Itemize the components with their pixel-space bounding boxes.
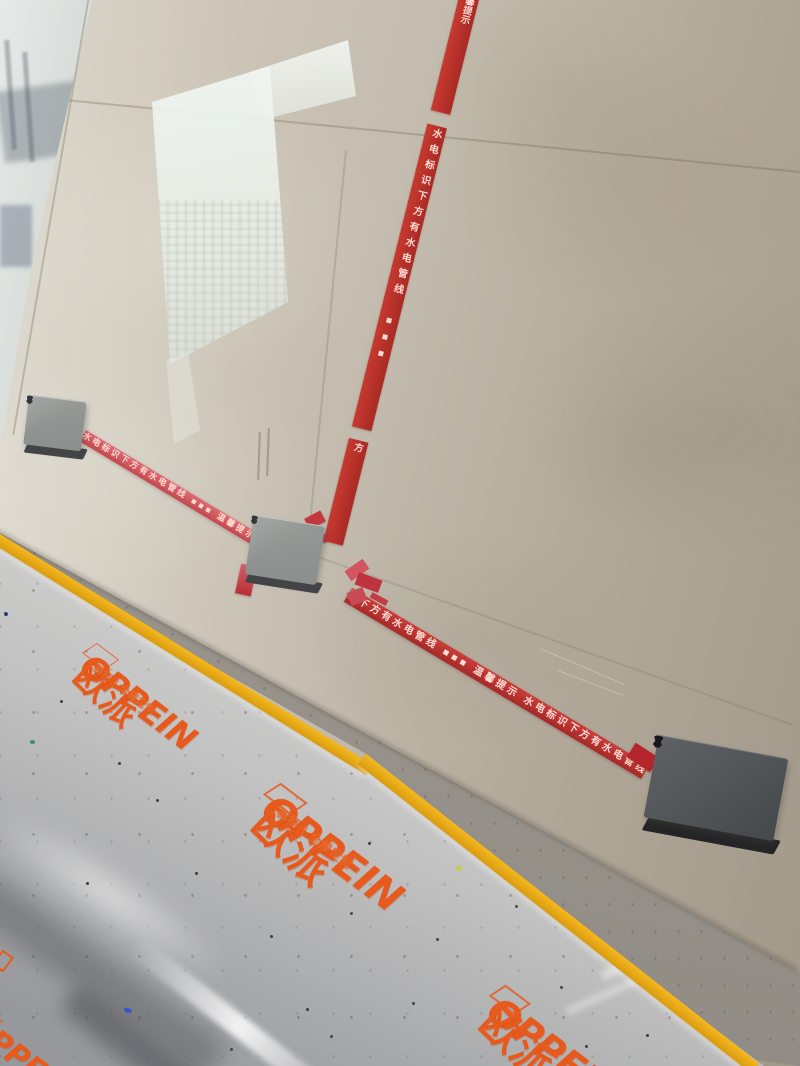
construction-site-photo: 有水电管线 ▪▪▪ 温馨提示 水电标识下方有水电管线 ▪▪▪ 温馨提示 水电标识… xyxy=(0,0,800,1066)
tape-fold xyxy=(370,592,389,606)
green-speck xyxy=(456,866,462,871)
power-socket-left xyxy=(23,395,87,452)
tape-fold xyxy=(346,587,367,606)
reflected-building-block xyxy=(0,205,32,267)
blue-speck xyxy=(4,612,8,616)
crumpled-tape-knot xyxy=(344,562,394,612)
power-socket-middle xyxy=(245,515,325,586)
teal-speck xyxy=(30,740,35,744)
socket-face xyxy=(23,395,87,452)
socket-face xyxy=(245,515,325,586)
